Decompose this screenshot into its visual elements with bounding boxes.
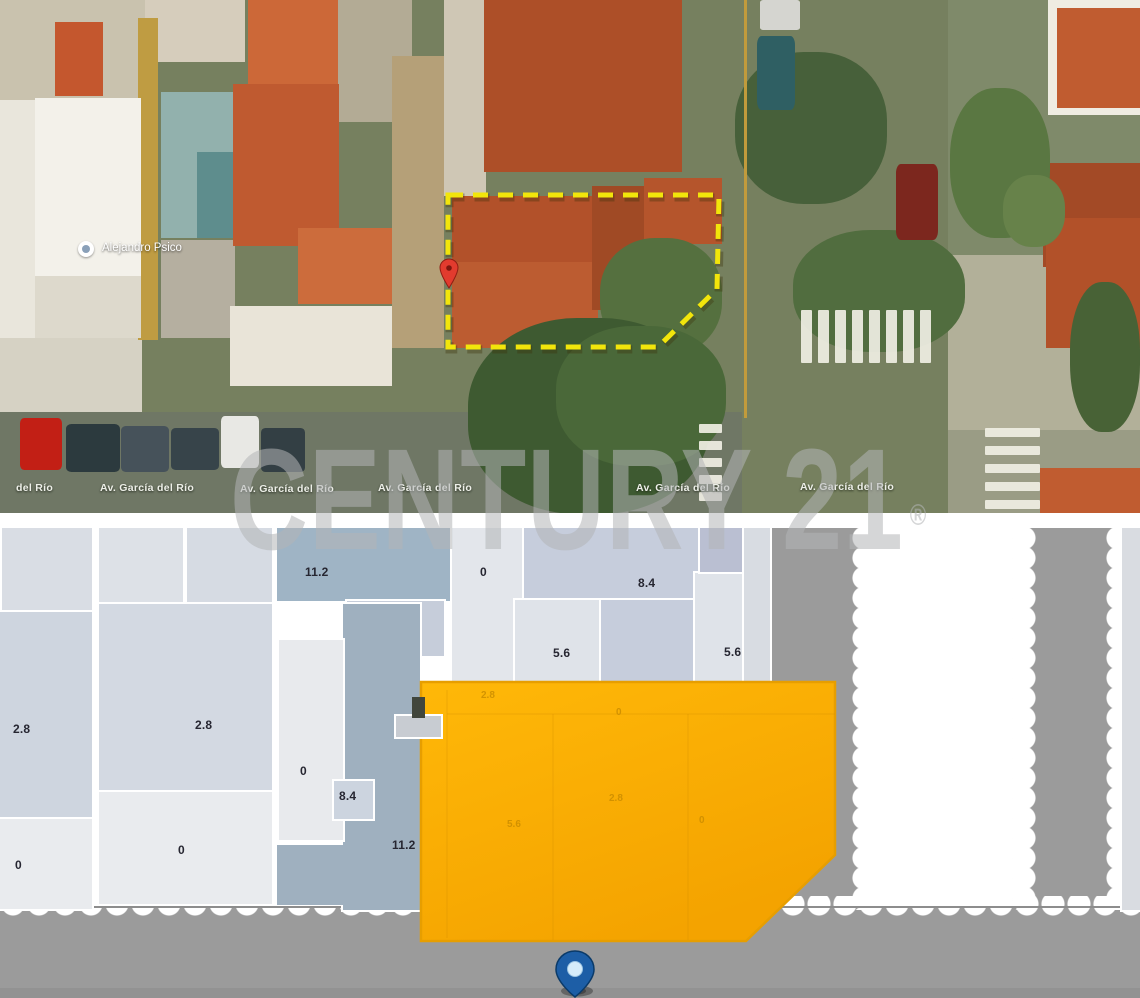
satellite-patch (230, 306, 392, 386)
building-block (99, 528, 183, 602)
height-label: 5.6 (724, 645, 741, 659)
height-label: 8.4 (339, 789, 356, 803)
map-background (0, 513, 1140, 998)
satellite-patch (35, 276, 141, 338)
building-block (515, 600, 601, 684)
satellite-patch (1040, 468, 1140, 513)
crosswalk-stripe (869, 310, 880, 363)
listing-image: del RíoAv. García del RíoAv. García del … (0, 0, 1140, 998)
street-name-label: Av. García del Río (636, 482, 730, 494)
street-name-label: del Río (16, 482, 53, 494)
building-block (343, 604, 420, 910)
satellite-patch (0, 100, 35, 338)
satellite-patch (444, 0, 486, 196)
satellite-patch (0, 338, 142, 420)
crosswalk-stripe (699, 458, 722, 467)
crosswalk-stripe (852, 310, 863, 363)
satellite-patch (484, 0, 682, 172)
satellite-patch (757, 36, 795, 110)
building-block (0, 612, 92, 817)
crosswalk-stripe (985, 464, 1040, 473)
crosswalk-stripe (985, 428, 1040, 437)
building-block (2, 528, 92, 610)
satellite-patch (145, 0, 245, 62)
building-block (695, 573, 743, 683)
building-block (277, 528, 522, 601)
satellite-patch (55, 22, 103, 96)
satellite-patch (1070, 282, 1140, 432)
building-block (334, 781, 373, 819)
lot-parcel-lines (447, 690, 835, 940)
building-block (0, 819, 92, 909)
height-label: 11.2 (392, 838, 416, 852)
satellite-patch (121, 426, 169, 472)
road-edge-scallop (0, 896, 1140, 916)
building-block (744, 528, 770, 683)
satellite-patch (392, 56, 444, 348)
highlighted-lot[interactable] (421, 682, 835, 941)
road-surface (1025, 528, 1118, 918)
crosswalk-stripe (920, 310, 931, 363)
road-edge-line (0, 988, 1140, 998)
lot-height-label: 0 (616, 707, 622, 718)
crosswalk-stripe (985, 482, 1040, 491)
crosswalk-stripe (835, 310, 846, 363)
satellite-patch (1057, 8, 1140, 108)
lot-height-label: 2.8 (609, 793, 623, 804)
satellite-patch (760, 0, 800, 30)
building-block (700, 528, 742, 572)
satellite-patch (20, 418, 62, 470)
building-block (0, 528, 3, 608)
building-block (279, 640, 343, 840)
small-structure-light (396, 716, 441, 737)
street-name-label: Av. García del Río (240, 483, 334, 495)
height-label: 8.4 (388, 618, 405, 632)
satellite-patch (298, 228, 392, 304)
satellite-patch (1003, 175, 1065, 247)
crosswalk-stripe (699, 424, 722, 433)
poi-label: Alejandro Psico (102, 242, 182, 254)
small-structure-dark (412, 697, 425, 718)
satellite-patch (66, 424, 120, 472)
building-block (452, 528, 522, 692)
poi-pin-icon (78, 241, 94, 257)
building-block (99, 792, 272, 904)
satellite-patch (171, 428, 219, 470)
blue-pin[interactable] (556, 951, 594, 997)
lot-height-label: 2.8 (481, 690, 495, 701)
street-name-label: Av. García del Río (100, 482, 194, 494)
building-block (601, 600, 693, 684)
road-edge-line (0, 906, 1140, 908)
crosswalk-stripe (985, 446, 1040, 455)
road-surface (0, 908, 1140, 998)
crosswalk-stripe (985, 500, 1040, 509)
building-block (99, 604, 272, 790)
crosswalk-stripe (886, 310, 897, 363)
satellite-patch (644, 178, 722, 244)
satellite-patch (233, 84, 339, 246)
crosswalk-stripe (801, 310, 812, 363)
satellite-view[interactable]: del RíoAv. García del RíoAv. García del … (0, 0, 1140, 513)
road-edge-scallop (852, 528, 876, 910)
height-label: 2.8 (195, 718, 212, 732)
building-block (1122, 528, 1140, 910)
height-label: 0 (480, 565, 487, 579)
building-block (347, 601, 444, 656)
poi-marker[interactable]: Alejandro Psico (78, 241, 94, 257)
height-label: 8.4 (638, 576, 655, 590)
height-label: 5.6 (553, 646, 570, 660)
satellite-patch (248, 0, 338, 84)
crosswalk-stripe (818, 310, 829, 363)
crosswalk-stripe (699, 441, 722, 450)
lot-height-label: 0 (699, 815, 705, 826)
height-label: 2.8 (13, 722, 30, 736)
road-edge-scallop (1106, 528, 1130, 910)
height-label: 11.2 (305, 565, 329, 579)
pin-shadow (561, 986, 593, 997)
crosswalk-stripe (903, 310, 914, 363)
height-label: 0 (178, 843, 185, 857)
satellite-patch (261, 428, 305, 472)
building-block (277, 845, 345, 905)
road-surface (771, 528, 868, 918)
satellite-patch (138, 18, 158, 340)
height-label: 0 (15, 858, 22, 872)
pin-shadow-core (568, 988, 586, 995)
road-edge-scallop (1012, 528, 1036, 910)
street-name-label: Av. García del Río (800, 481, 894, 493)
satellite-patch (221, 416, 259, 468)
satellite-patch (744, 0, 747, 418)
lot-height-label: 5.6 (507, 819, 521, 830)
street-name-label: Av. García del Río (378, 482, 472, 494)
height-label: 0 (300, 764, 307, 778)
satellite-patch (197, 152, 235, 238)
building-block (524, 528, 738, 598)
satellite-patch (161, 240, 235, 338)
satellite-patch (896, 164, 938, 240)
building-block (187, 528, 272, 602)
